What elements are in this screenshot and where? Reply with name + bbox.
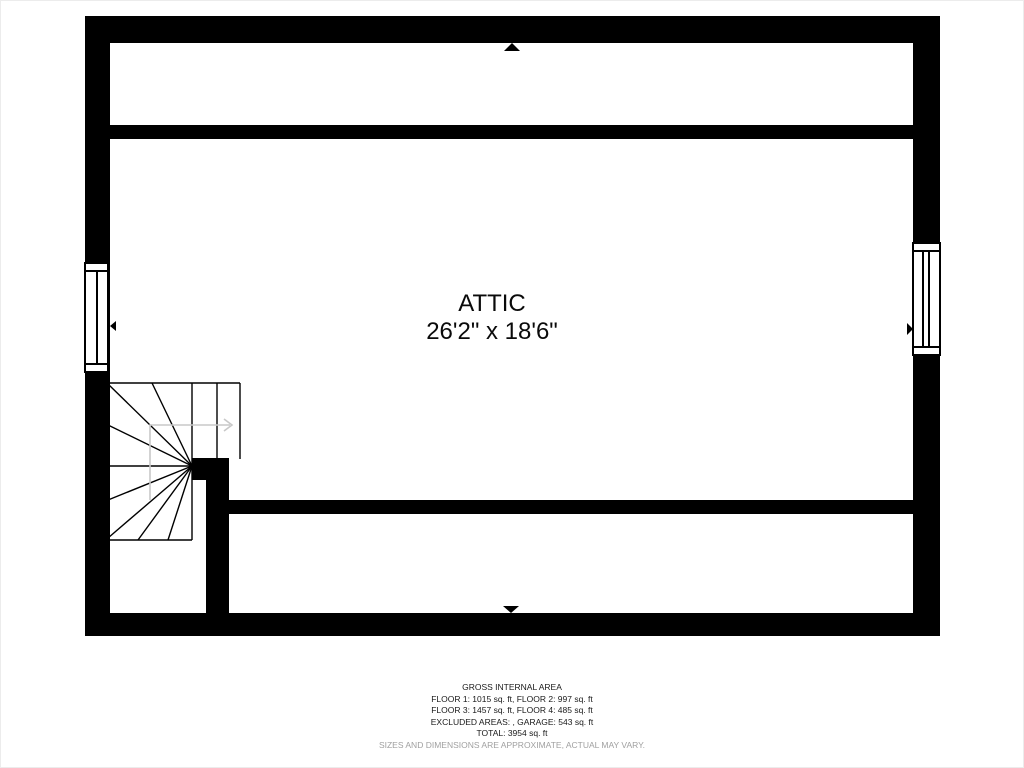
area-summary-line: FLOOR 3: 1457 sq. ft, FLOOR 4: 485 sq. f…	[0, 705, 1024, 717]
triangle-marker-right-icon	[907, 323, 913, 335]
wall-bottom	[85, 613, 940, 636]
staircase	[0, 0, 1024, 768]
area-summary-line: TOTAL: 3954 sq. ft	[0, 728, 1024, 740]
triangle-marker-top-icon	[504, 43, 520, 51]
window-left	[84, 262, 109, 373]
area-summary-line: EXCLUDED AREAS: , GARAGE: 543 sq. ft	[0, 717, 1024, 729]
room-name: ATTIC	[392, 290, 592, 318]
wall-top	[85, 16, 940, 43]
floor-plan-canvas: ATTIC 26'2" x 18'6" GROSS INTERNAL AREA …	[0, 0, 1024, 768]
area-summary-line: FLOOR 1: 1015 sq. ft, FLOOR 2: 997 sq. f…	[0, 694, 1024, 706]
disclaimer-text: SIZES AND DIMENSIONS ARE APPROXIMATE, AC…	[0, 740, 1024, 752]
triangle-marker-bottom-icon	[503, 606, 519, 613]
room-dimensions: 26'2" x 18'6"	[392, 318, 592, 346]
window-glass-line	[922, 252, 924, 346]
window-frame-line	[914, 250, 939, 252]
window-glass-line	[928, 252, 930, 346]
room-label-block: ATTIC 26'2" x 18'6"	[392, 290, 592, 346]
wall-upper-divider	[108, 125, 915, 139]
window-frame-line	[86, 363, 107, 365]
wall-lower-divider	[228, 500, 915, 514]
window-glass-line	[96, 272, 98, 363]
window-frame-line	[914, 346, 939, 348]
wall-stair-vertical	[206, 478, 229, 614]
wall-stair-landing-stub	[192, 458, 229, 480]
area-summary: GROSS INTERNAL AREA FLOOR 1: 1015 sq. ft…	[0, 682, 1024, 752]
triangle-marker-left-icon	[110, 321, 116, 331]
window-right	[912, 242, 941, 356]
area-summary-title: GROSS INTERNAL AREA	[0, 682, 1024, 694]
